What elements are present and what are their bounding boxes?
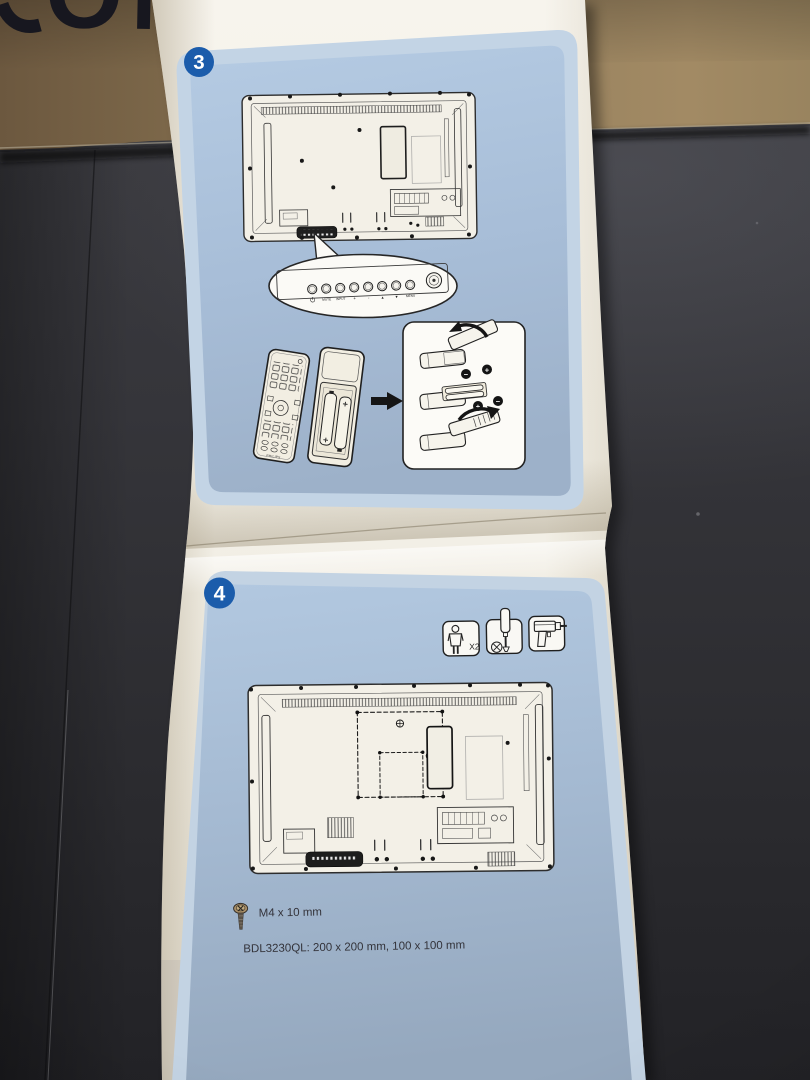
barcode-text	[311, 855, 357, 862]
table-seam	[45, 150, 95, 1080]
svg-text:▲: ▲	[381, 296, 385, 300]
svg-text:MENU: MENU	[406, 294, 416, 298]
bottom-vent	[327, 817, 353, 837]
polarity-minus-badge: −	[496, 397, 501, 406]
button-grid-top	[269, 361, 303, 392]
vesa-plate	[427, 726, 453, 788]
step3-number: 3	[193, 51, 204, 74]
bottom-vent	[488, 852, 515, 866]
bottom-vent	[426, 217, 444, 226]
monitor-outline	[248, 682, 554, 873]
tool-person-box: X2	[443, 621, 480, 656]
step4-number: 4	[214, 583, 226, 606]
table-seam-scratch	[48, 690, 68, 1080]
x2-label: X2	[469, 641, 480, 651]
dust-speck	[756, 222, 759, 225]
dust-speck	[696, 512, 700, 516]
screw-spec-text: M4 x 10 mm	[259, 906, 322, 919]
monitor-back-diagram-step4	[248, 682, 554, 873]
svg-text:▼: ▼	[395, 295, 399, 299]
battery-install-box: − + + −	[403, 318, 525, 469]
ir-sensor-icon	[426, 272, 442, 288]
svg-text:MUTE: MUTE	[322, 297, 331, 301]
monitor-back-diagram-step3	[242, 90, 477, 241]
polarity-minus-badge: −	[464, 370, 469, 379]
scene-drawing: ON 3	[0, 0, 810, 1080]
polarity-plus-badge: +	[485, 365, 490, 374]
tool-drill-box	[529, 616, 568, 651]
photo-instruction-leaflet-scene: ON 3	[0, 0, 810, 1080]
svg-text:INPUT: INPUT	[336, 297, 346, 301]
vesa-plate	[380, 126, 406, 178]
